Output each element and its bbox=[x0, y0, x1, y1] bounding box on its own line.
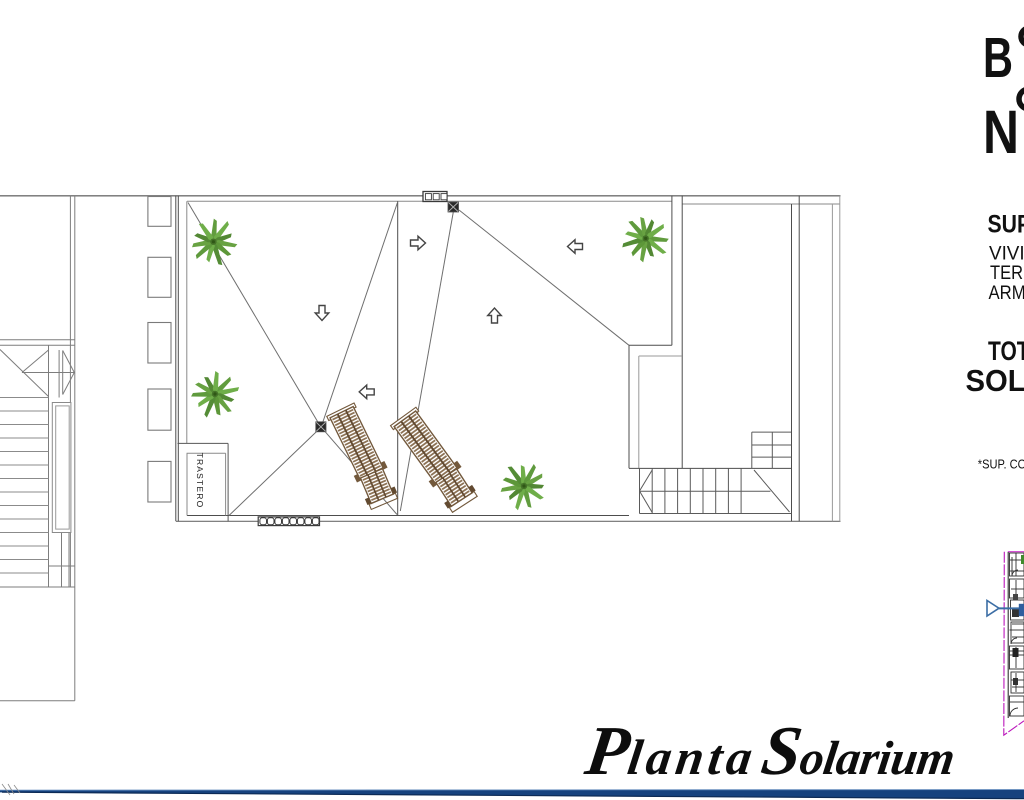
svg-text:N: N bbox=[983, 98, 1019, 166]
svg-text:TERRAZAS: TERRAZAS bbox=[990, 262, 1024, 284]
svg-text:ARMARIO: ARMARIO bbox=[989, 282, 1024, 304]
svg-text:Planta: Planta bbox=[580, 712, 763, 790]
svg-text:SUPERF: SUPERF bbox=[988, 210, 1024, 238]
svg-text:Solarium: Solarium bbox=[757, 712, 961, 790]
svg-text:TOTAL: TOTAL bbox=[988, 336, 1024, 366]
svg-text:B: B bbox=[983, 26, 1013, 90]
svg-text:*SUP. CONSTRUIDA: *SUP. CONSTRUIDA bbox=[978, 456, 1024, 471]
svg-text:SOLARIUM: SOLARIUM bbox=[966, 363, 1024, 398]
svg-text:TRASTERO: TRASTERO bbox=[195, 453, 205, 509]
